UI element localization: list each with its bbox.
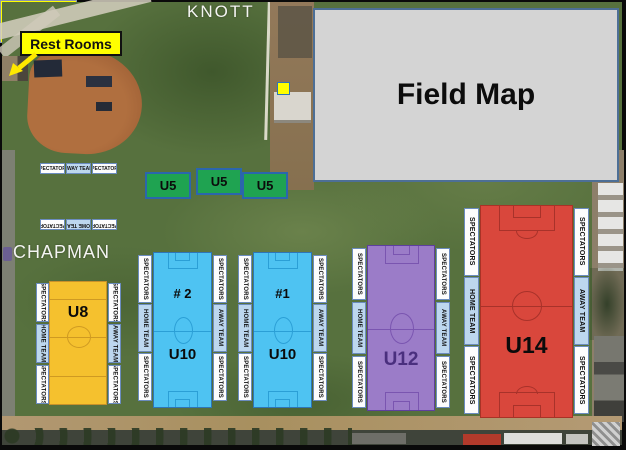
u10-2-right-labels: SPECTATORS AWAY TEAM SPECTATORS xyxy=(213,255,227,401)
spectators-label: SPECTATORS xyxy=(464,208,479,276)
spectators-label: SPECTATORS xyxy=(352,356,366,408)
away-team-label: AWAY TEAM xyxy=(436,302,450,354)
away-team-label: AWAY TEAM xyxy=(213,304,227,352)
spectators-label: SPECTATORS xyxy=(574,208,589,276)
trees xyxy=(590,268,624,340)
spectators-label: SPECTATORS xyxy=(92,219,117,230)
spectators-label: SPECTATORS xyxy=(436,356,450,408)
u10-2-left-labels: SPECTATORS HOME TEAM SPECTATORS xyxy=(138,255,152,401)
home-team-label: HOME TEAM xyxy=(352,302,366,354)
u8-right-labels: SPECTATORS AWAY TEAM SPECTATORS xyxy=(108,283,121,404)
spectators-label: SPECTATORS xyxy=(238,255,252,303)
field-u5-2: U5 xyxy=(196,168,242,195)
u10-1-right-labels: SPECTATORS AWAY TEAM SPECTATORS xyxy=(313,255,327,401)
red-container xyxy=(463,434,501,445)
street-label-chapman: CHAPMAN xyxy=(13,242,110,263)
home-team-label: HOME TEAM xyxy=(238,304,252,352)
field-label: U8 xyxy=(50,304,106,322)
paved-lot xyxy=(592,422,620,446)
field-u12: U12 xyxy=(367,245,435,411)
field-label: U10 xyxy=(154,346,211,363)
trees xyxy=(2,428,352,445)
spectators-label: SPECTATORS xyxy=(436,248,450,300)
page-title: Field Map xyxy=(397,78,535,112)
spectators-label: SPECTATORS xyxy=(92,163,117,174)
car xyxy=(3,247,12,261)
field-u10-2: # 2 U10 xyxy=(153,252,212,408)
parking-area xyxy=(594,336,624,422)
u10-1-left-labels: SPECTATORS HOME TEAM SPECTATORS xyxy=(238,255,252,401)
spectators-label: SPECTATORS xyxy=(138,353,152,401)
building xyxy=(278,6,312,58)
yellow-field-marker xyxy=(277,82,290,95)
spectators-label: SPECTATORS xyxy=(108,365,121,404)
field-u5-1: U5 xyxy=(145,172,191,199)
arrow-down-left-icon xyxy=(6,52,40,78)
home-team-label: HOME TEAM xyxy=(36,324,49,363)
home-team-label: HOME TEAM xyxy=(138,304,152,352)
spectators-label: SPECTATORS xyxy=(108,283,121,322)
field-map-image: KNOTT CHAPMAN Field Map Rest Rooms SPECT… xyxy=(0,0,626,450)
spectators-label: SPECTATORS xyxy=(40,219,65,230)
spectators-label: SPECTATORS xyxy=(213,353,227,401)
spectators-label: SPECTATORS xyxy=(138,255,152,303)
u6-bottom-labels: SPECTATORS HOME TEAM SPECTATORS xyxy=(40,219,117,230)
home-team-label: HOME TEAM xyxy=(66,219,91,230)
building xyxy=(96,102,112,111)
u12-right-labels: SPECTATORS AWAY TEAM SPECTATORS xyxy=(436,248,450,408)
spectators-label: SPECTATORS xyxy=(464,346,479,414)
field-u5-3: U5 xyxy=(242,172,288,199)
trailers xyxy=(598,183,623,271)
building xyxy=(86,76,112,87)
away-team-label: AWAY TEAM xyxy=(66,163,91,174)
building xyxy=(274,92,311,123)
field-number: # 2 xyxy=(154,286,211,301)
away-team-label: AWAY TEAM xyxy=(108,324,121,363)
spectators-label: SPECTATORS xyxy=(574,346,589,414)
u8-left-labels: SPECTATORS HOME TEAM SPECTATORS xyxy=(36,283,49,404)
home-team-label: HOME TEAM xyxy=(464,277,479,345)
spectators-label: SPECTATORS xyxy=(313,255,327,303)
u12-left-labels: SPECTATORS HOME TEAM SPECTATORS xyxy=(352,248,366,408)
field-label: U14 xyxy=(481,332,572,359)
spectators-label: SPECTATORS xyxy=(313,353,327,401)
field-u8: U8 xyxy=(49,281,107,405)
spectators-label: SPECTATORS xyxy=(40,163,65,174)
spectators-label: SPECTATORS xyxy=(36,365,49,404)
spectators-label: SPECTATORS xyxy=(238,353,252,401)
spectators-label: SPECTATORS xyxy=(213,255,227,303)
street-label-knott: KNOTT xyxy=(187,2,255,22)
container xyxy=(566,434,588,444)
away-team-label: AWAY TEAM xyxy=(313,304,327,352)
legend-box: Field Map xyxy=(313,8,619,182)
field-u10-1: #1 U10 xyxy=(253,252,312,408)
u14-left-labels: SPECTATORS HOME TEAM SPECTATORS xyxy=(464,208,479,414)
field-label: U12 xyxy=(368,349,434,371)
field-number: #1 xyxy=(254,286,311,301)
truck xyxy=(352,433,406,444)
road xyxy=(2,150,15,418)
u6-top-labels: SPECTATORS AWAY TEAM SPECTATORS xyxy=(40,163,117,174)
u14-right-labels: SPECTATORS AWAY TEAM SPECTATORS xyxy=(574,208,589,414)
spectators-label: SPECTATORS xyxy=(352,248,366,300)
field-label: U10 xyxy=(254,346,311,363)
field-u14: U14 xyxy=(480,205,573,418)
spectators-label: SPECTATORS xyxy=(36,283,49,322)
white-container xyxy=(504,433,562,444)
away-team-label: AWAY TEAM xyxy=(574,277,589,345)
